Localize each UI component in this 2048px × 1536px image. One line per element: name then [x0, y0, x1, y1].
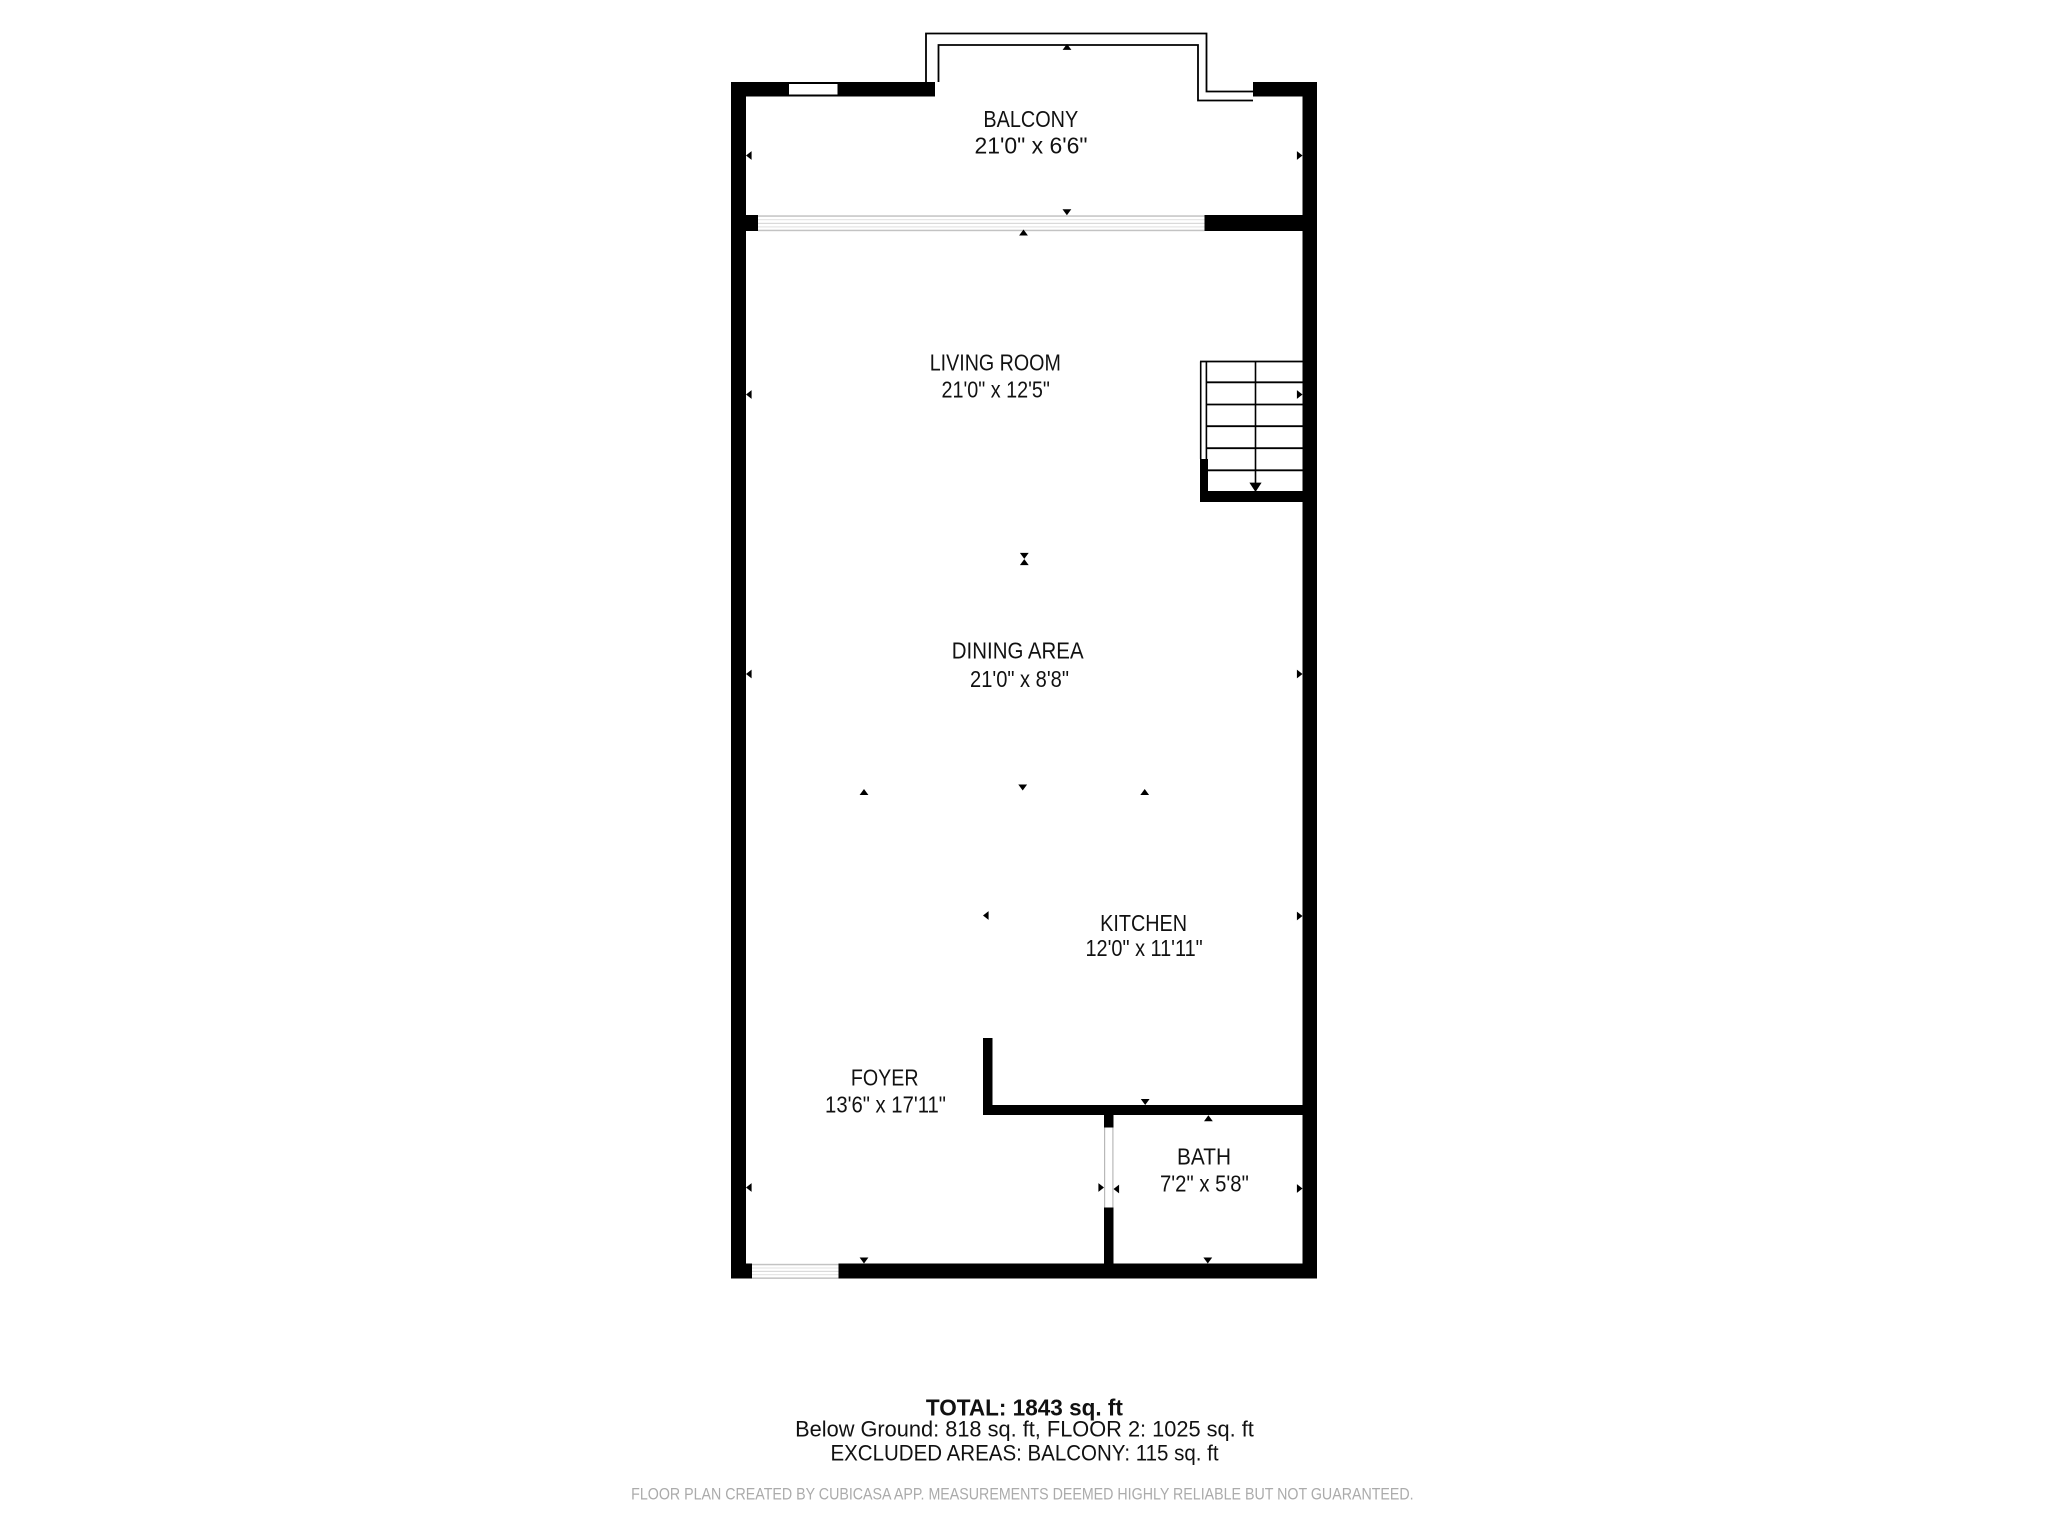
- svg-text:BATH: BATH: [1177, 1144, 1231, 1170]
- svg-text:Below Ground: 818 sq. ft, FLOO: Below Ground: 818 sq. ft, FLOOR 2: 1025 …: [795, 1417, 1254, 1442]
- svg-text:DINING AREA: DINING AREA: [952, 638, 1084, 664]
- svg-text:12'0" x 11'11": 12'0" x 11'11": [1086, 935, 1203, 961]
- svg-text:21'0" x 6'6": 21'0" x 6'6": [975, 132, 1088, 158]
- svg-text:21'0" x 8'8": 21'0" x 8'8": [970, 666, 1069, 692]
- svg-text:EXCLUDED AREAS: BALCONY: 115 s: EXCLUDED AREAS: BALCONY: 115 sq. ft: [830, 1440, 1218, 1465]
- svg-text:LIVING ROOM: LIVING ROOM: [930, 349, 1061, 375]
- svg-text:7'2" x 5'8": 7'2" x 5'8": [1160, 1170, 1249, 1196]
- svg-text:KITCHEN: KITCHEN: [1100, 910, 1187, 936]
- svg-text:FLOOR PLAN CREATED BY CUBICASA: FLOOR PLAN CREATED BY CUBICASA APP. MEAS…: [631, 1485, 1414, 1504]
- svg-text:13'6" x 17'11": 13'6" x 17'11": [825, 1091, 946, 1117]
- svg-text:BALCONY: BALCONY: [983, 106, 1078, 132]
- svg-text:FOYER: FOYER: [851, 1064, 919, 1090]
- svg-text:21'0" x 12'5": 21'0" x 12'5": [942, 376, 1050, 402]
